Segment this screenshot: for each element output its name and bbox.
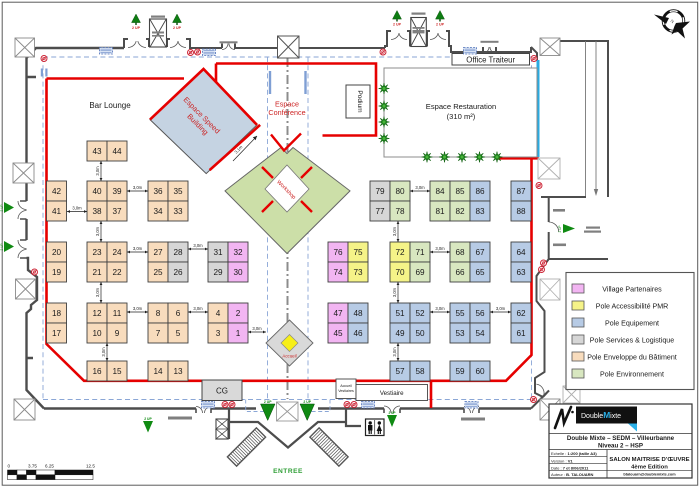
svg-text:80: 80 bbox=[395, 187, 405, 196]
svg-text:10: 10 bbox=[92, 329, 102, 338]
svg-text:31: 31 bbox=[213, 248, 223, 257]
svg-text:13: 13 bbox=[173, 367, 183, 376]
svg-text:30: 30 bbox=[233, 268, 243, 277]
svg-text:3,0m: 3,0m bbox=[95, 166, 100, 176]
svg-text:75: 75 bbox=[353, 248, 363, 257]
svg-text:57: 57 bbox=[395, 367, 405, 376]
svg-text:2 UP: 2 UP bbox=[558, 225, 562, 232]
svg-text:40: 40 bbox=[92, 187, 102, 196]
svg-text:ENTREE: ENTREE bbox=[273, 468, 303, 475]
svg-text:77: 77 bbox=[375, 207, 385, 216]
svg-text:78: 78 bbox=[395, 207, 405, 216]
svg-text:11: 11 bbox=[113, 309, 122, 318]
svg-text:47: 47 bbox=[333, 309, 343, 318]
svg-text:74: 74 bbox=[333, 268, 343, 277]
svg-text:Pole Accessibilité PMR: Pole Accessibilité PMR bbox=[596, 302, 669, 310]
svg-text:87: 87 bbox=[516, 187, 526, 196]
svg-text:64: 64 bbox=[516, 248, 526, 257]
svg-text:2 UP: 2 UP bbox=[264, 400, 272, 404]
svg-text:3,0m: 3,0m bbox=[435, 246, 445, 251]
svg-text:3,0m: 3,0m bbox=[133, 306, 143, 311]
svg-text:6.25: 6.25 bbox=[45, 464, 54, 469]
svg-text:15: 15 bbox=[112, 367, 122, 376]
svg-text:Conférence: Conférence bbox=[268, 108, 305, 117]
svg-text:86: 86 bbox=[475, 187, 485, 196]
svg-text:2: 2 bbox=[236, 309, 241, 318]
svg-text:27: 27 bbox=[153, 248, 163, 257]
svg-text:Village Partenaires: Village Partenaires bbox=[602, 285, 662, 293]
svg-text:5: 5 bbox=[176, 329, 181, 338]
svg-text:3,0m: 3,0m bbox=[101, 347, 106, 357]
svg-text:43: 43 bbox=[92, 147, 102, 156]
svg-text:81: 81 bbox=[435, 207, 445, 216]
svg-text:29: 29 bbox=[213, 268, 223, 277]
svg-text:Accueil: Accueil bbox=[340, 384, 352, 388]
svg-text:3,0m: 3,0m bbox=[415, 185, 425, 190]
svg-text:12.5: 12.5 bbox=[86, 464, 95, 469]
svg-text:Pole Environnement: Pole Environnement bbox=[600, 370, 664, 378]
svg-text:Office Traiteur: Office Traiteur bbox=[466, 55, 515, 64]
svg-text:60: 60 bbox=[475, 367, 485, 376]
svg-text:2 UP: 2 UP bbox=[144, 417, 152, 421]
svg-text:Vestiaires: Vestiaires bbox=[338, 389, 354, 393]
svg-text:btalouarn@doublemixte.com: btalouarn@doublemixte.com bbox=[623, 472, 676, 476]
svg-text:76: 76 bbox=[333, 248, 343, 257]
svg-text:3,0m: 3,0m bbox=[193, 306, 203, 311]
svg-text:4ème Edition: 4ème Edition bbox=[631, 465, 668, 471]
svg-text:14: 14 bbox=[153, 367, 163, 376]
svg-text:SALON MAITRISE D’ŒUVRE: SALON MAITRISE D’ŒUVRE bbox=[609, 457, 689, 463]
svg-text:3,0m: 3,0m bbox=[496, 306, 506, 311]
svg-text:2 UP: 2 UP bbox=[388, 411, 396, 415]
svg-text:45: 45 bbox=[333, 329, 343, 338]
svg-text:55: 55 bbox=[455, 309, 465, 318]
svg-text:4: 4 bbox=[216, 309, 221, 318]
svg-text:3: 3 bbox=[216, 329, 221, 338]
svg-text:Auteur : B. TALOUARN: Auteur : B. TALOUARN bbox=[551, 472, 593, 477]
svg-text:Accueil: Accueil bbox=[282, 354, 296, 359]
svg-text:2 UP: 2 UP bbox=[393, 23, 402, 27]
svg-text:2 UP: 2 UP bbox=[303, 400, 311, 404]
svg-text:Pole Equipement: Pole Equipement bbox=[605, 319, 659, 327]
svg-text:9: 9 bbox=[115, 329, 120, 338]
svg-text:22: 22 bbox=[112, 268, 122, 277]
svg-text:26: 26 bbox=[173, 268, 183, 277]
svg-text:Podium: Podium bbox=[356, 90, 363, 113]
svg-text:71: 71 bbox=[415, 248, 425, 257]
svg-text:54: 54 bbox=[475, 329, 485, 338]
svg-text:0: 0 bbox=[8, 464, 11, 469]
svg-text:63: 63 bbox=[516, 268, 526, 277]
svg-text:Version : V1: Version : V1 bbox=[551, 458, 573, 463]
svg-text:28: 28 bbox=[173, 248, 183, 257]
svg-text:53: 53 bbox=[455, 329, 465, 338]
svg-text:62: 62 bbox=[516, 309, 526, 318]
svg-text:3,0m: 3,0m bbox=[392, 287, 397, 297]
svg-text:3,0m: 3,0m bbox=[252, 326, 262, 331]
svg-text:51: 51 bbox=[395, 309, 405, 318]
svg-text:68: 68 bbox=[455, 248, 465, 257]
svg-text:Double Mixte – SEDM – Villeurb: Double Mixte – SEDM – Villeurbanne bbox=[567, 435, 675, 442]
svg-text:3,0m: 3,0m bbox=[435, 306, 445, 311]
svg-text:69: 69 bbox=[415, 268, 425, 277]
svg-text:49: 49 bbox=[395, 329, 405, 338]
svg-text:85: 85 bbox=[455, 187, 465, 196]
svg-text:2 UP: 2 UP bbox=[132, 26, 141, 30]
svg-text:84: 84 bbox=[435, 187, 445, 196]
svg-text:3,0m: 3,0m bbox=[133, 185, 143, 190]
svg-text:Bar Lounge: Bar Lounge bbox=[89, 101, 131, 110]
svg-text:79: 79 bbox=[375, 187, 385, 196]
svg-text:6: 6 bbox=[176, 309, 181, 318]
svg-text:23: 23 bbox=[92, 248, 102, 257]
svg-text:8: 8 bbox=[156, 309, 161, 318]
svg-text:18: 18 bbox=[52, 309, 62, 318]
svg-text:70: 70 bbox=[395, 268, 405, 277]
svg-text:12: 12 bbox=[92, 309, 102, 318]
svg-text:61: 61 bbox=[516, 329, 526, 338]
svg-text:88: 88 bbox=[516, 207, 526, 216]
svg-text:Echelle : 1:200 (taille A3): Echelle : 1:200 (taille A3) bbox=[551, 451, 597, 456]
svg-text:52: 52 bbox=[415, 309, 425, 318]
svg-text:3,0m: 3,0m bbox=[193, 243, 203, 248]
svg-text:3.75: 3.75 bbox=[28, 464, 37, 469]
svg-text:34: 34 bbox=[153, 207, 163, 216]
svg-text:35: 35 bbox=[173, 187, 183, 196]
svg-text:67: 67 bbox=[475, 248, 485, 257]
svg-text:3,0m: 3,0m bbox=[392, 347, 397, 357]
svg-text:7: 7 bbox=[156, 329, 161, 338]
svg-text:41: 41 bbox=[52, 207, 62, 216]
svg-text:82: 82 bbox=[455, 207, 465, 216]
svg-text:2 UP: 2 UP bbox=[173, 26, 182, 30]
svg-text:Espace Restauration: Espace Restauration bbox=[426, 102, 497, 111]
svg-text:3,0m: 3,0m bbox=[95, 226, 100, 236]
svg-text:Niveau 2 – HSP: Niveau 2 – HSP bbox=[598, 442, 643, 449]
svg-text:3,0m: 3,0m bbox=[95, 287, 100, 297]
svg-text:32: 32 bbox=[233, 248, 243, 257]
svg-text:42: 42 bbox=[52, 187, 62, 196]
svg-text:3,0m: 3,0m bbox=[133, 246, 143, 251]
svg-text:72: 72 bbox=[395, 248, 405, 257]
svg-text:56: 56 bbox=[475, 309, 485, 318]
svg-text:46: 46 bbox=[353, 329, 363, 338]
svg-text:48: 48 bbox=[353, 309, 363, 318]
svg-text:Pole Services & Logistique: Pole Services & Logistique bbox=[590, 336, 674, 344]
svg-text:16: 16 bbox=[92, 367, 102, 376]
svg-text:58: 58 bbox=[415, 367, 425, 376]
svg-text:44: 44 bbox=[112, 147, 122, 156]
svg-text:17: 17 bbox=[52, 329, 62, 338]
svg-text:83: 83 bbox=[475, 207, 485, 216]
svg-text:2 UP: 2 UP bbox=[0, 243, 4, 250]
svg-text:65: 65 bbox=[475, 268, 485, 277]
svg-text:20: 20 bbox=[52, 248, 62, 257]
svg-text:21: 21 bbox=[92, 268, 102, 277]
svg-text:33: 33 bbox=[173, 207, 183, 216]
svg-text:CG: CG bbox=[216, 387, 228, 396]
svg-text:59: 59 bbox=[455, 367, 465, 376]
svg-text:3,0m: 3,0m bbox=[72, 205, 82, 210]
svg-text:2 UP: 2 UP bbox=[436, 23, 445, 27]
svg-text:1: 1 bbox=[236, 329, 241, 338]
svg-text:37: 37 bbox=[112, 207, 122, 216]
svg-text:24: 24 bbox=[112, 248, 122, 257]
svg-text:25: 25 bbox=[153, 268, 163, 277]
svg-text:19: 19 bbox=[52, 268, 62, 277]
svg-text:Date : 7 et 8/06/2011: Date : 7 et 8/06/2011 bbox=[551, 465, 589, 470]
svg-text:Pole Enveloppe du Bâtiment: Pole Enveloppe du Bâtiment bbox=[587, 353, 677, 361]
svg-text:50: 50 bbox=[415, 329, 425, 338]
svg-text:38: 38 bbox=[92, 207, 102, 216]
svg-text:73: 73 bbox=[353, 268, 363, 277]
svg-text:(310 m²): (310 m²) bbox=[447, 112, 476, 121]
svg-text:36: 36 bbox=[153, 187, 163, 196]
svg-text:Vestiaire: Vestiaire bbox=[380, 390, 404, 397]
svg-text:2 UP: 2 UP bbox=[0, 204, 4, 211]
svg-text:66: 66 bbox=[455, 268, 465, 277]
svg-text:39: 39 bbox=[112, 187, 122, 196]
svg-text:3,0m: 3,0m bbox=[392, 226, 397, 236]
